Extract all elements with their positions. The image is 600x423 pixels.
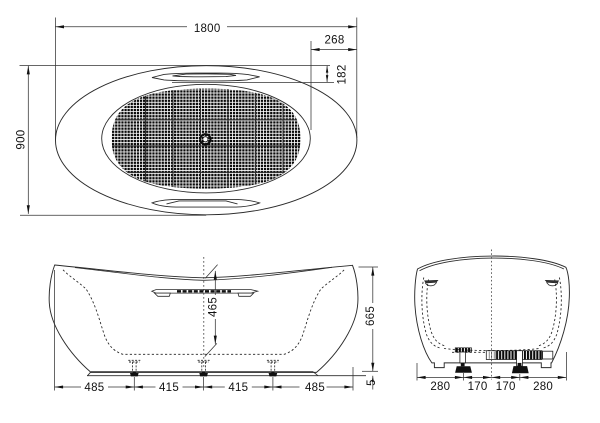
svg-text:268: 268: [325, 34, 345, 46]
svg-text:5: 5: [366, 379, 378, 386]
svg-text:485: 485: [305, 382, 325, 394]
svg-text:280: 280: [430, 381, 450, 393]
svg-text:280: 280: [533, 381, 553, 393]
svg-text:170: 170: [496, 381, 516, 393]
svg-text:1800: 1800: [194, 23, 221, 35]
svg-text:900: 900: [16, 130, 28, 150]
svg-text:182: 182: [336, 65, 348, 85]
svg-text:465: 465: [208, 297, 220, 317]
svg-text:485: 485: [84, 382, 104, 394]
svg-text:415: 415: [228, 382, 248, 394]
svg-text:665: 665: [365, 306, 377, 326]
svg-text:415: 415: [159, 382, 179, 394]
svg-text:170: 170: [468, 381, 488, 393]
